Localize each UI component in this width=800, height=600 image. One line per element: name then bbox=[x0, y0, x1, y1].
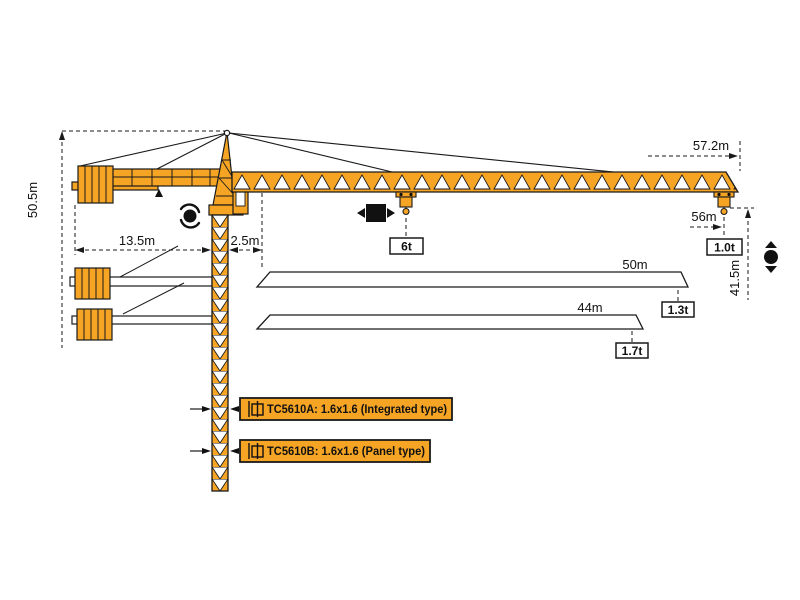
working-radius-label: 56m bbox=[691, 209, 716, 224]
model-labels: TC5610A: 1.6x1.6 (Integrated type) TC561… bbox=[267, 402, 447, 458]
variant1-counterweight-block bbox=[75, 268, 110, 299]
arrow-up-41-5 bbox=[745, 209, 751, 218]
hoist-icon-down-arrow bbox=[765, 266, 777, 273]
trolley-frame bbox=[714, 192, 734, 197]
pendant-counterjib-tail bbox=[80, 133, 227, 166]
model-b-text: TC5610B: 1.6x1.6 (Panel type) bbox=[267, 444, 425, 458]
trolley-wheel bbox=[399, 193, 402, 196]
variant2-counterweight-block bbox=[77, 309, 112, 340]
jib-variant-outlines bbox=[257, 272, 688, 329]
under-hook-height-label: 41.5m bbox=[727, 260, 742, 296]
arrow-left-13-5 bbox=[75, 247, 84, 253]
overall-height-label: 50.5m bbox=[25, 182, 40, 218]
arrow-right-13-5 bbox=[202, 247, 211, 253]
max-load-label: 6t bbox=[401, 240, 412, 254]
jib-outline-44m bbox=[257, 315, 643, 329]
tower-mast bbox=[212, 215, 228, 491]
model-a-text: TC5610A: 1.6x1.6 (Integrated type) bbox=[267, 402, 447, 416]
hook bbox=[721, 209, 727, 215]
arrow-right-57-2 bbox=[729, 153, 738, 159]
jib-tip-trolley bbox=[714, 192, 734, 215]
hoist-up-down-icon bbox=[764, 241, 778, 273]
jib44-length-label: 44m bbox=[577, 300, 602, 315]
model-a-right-arrow bbox=[230, 406, 239, 412]
slewing-dot bbox=[184, 210, 197, 223]
tip-load-44m-label: 1.7t bbox=[622, 344, 643, 358]
trolley-travel-icon bbox=[357, 204, 395, 222]
tip-load-56m-label: 1.0t bbox=[714, 241, 735, 255]
trolley-icon-left-arrow bbox=[357, 208, 365, 218]
hoist-icon-up-arrow bbox=[765, 241, 777, 248]
counterjib-radius-label: 13.5m bbox=[119, 233, 155, 248]
counter-jib bbox=[72, 166, 228, 203]
load-boxes bbox=[390, 238, 742, 358]
model-b-left-arrow bbox=[202, 448, 211, 454]
hook-block bbox=[400, 197, 412, 207]
counterweight-variant-50m bbox=[70, 246, 212, 299]
trolley-frame bbox=[396, 192, 416, 197]
trolley-wheel bbox=[727, 193, 730, 196]
hook-block bbox=[718, 197, 730, 207]
pendant-counterjib-mid bbox=[157, 133, 227, 169]
tower-head bbox=[213, 130, 235, 205]
tower-crane-diagram: 50.5m 13.5m 2.5m 57.2m 56m 41.5m 50m 44m… bbox=[0, 0, 800, 600]
jib50-length-label: 50m bbox=[622, 257, 647, 272]
arrow-up-overall-height bbox=[59, 131, 65, 140]
pendant-jib-inner bbox=[229, 133, 392, 172]
slewing-rotation-icon bbox=[181, 205, 199, 228]
variant2-leader-line bbox=[123, 283, 184, 314]
jib-outline-50m bbox=[257, 272, 688, 287]
hook bbox=[403, 209, 409, 215]
trolley-wheel bbox=[717, 193, 720, 196]
model-b-right-arrow bbox=[230, 448, 239, 454]
hoist-icon-dot bbox=[764, 250, 778, 264]
pendant-jib-outer bbox=[229, 133, 653, 176]
variant1-leader-line bbox=[120, 246, 178, 277]
jib-tip-distance-label: 57.2m bbox=[693, 138, 729, 153]
trolley-icon-square bbox=[366, 204, 386, 222]
counterweight-block bbox=[78, 166, 113, 203]
trolley-icon-right-arrow bbox=[387, 208, 395, 218]
load-labels: 6t 1.0t 1.3t 1.7t bbox=[401, 240, 735, 359]
main-jib bbox=[232, 172, 738, 192]
dimension-labels: 50.5m 13.5m 2.5m 57.2m 56m 41.5m 50m 44m bbox=[25, 138, 742, 315]
tower-head-apex-pin bbox=[224, 130, 229, 135]
tip-load-50m-label: 1.3t bbox=[668, 303, 689, 317]
arrow-right-56 bbox=[713, 224, 722, 230]
crane-diagram-page: 50.5m 13.5m 2.5m 57.2m 56m 41.5m 50m 44m… bbox=[0, 0, 800, 600]
trolley-wheel bbox=[409, 193, 412, 196]
slew-offset-label: 2.5m bbox=[231, 233, 260, 248]
model-a-left-arrow bbox=[202, 406, 211, 412]
mid-jib-trolley bbox=[396, 192, 416, 215]
